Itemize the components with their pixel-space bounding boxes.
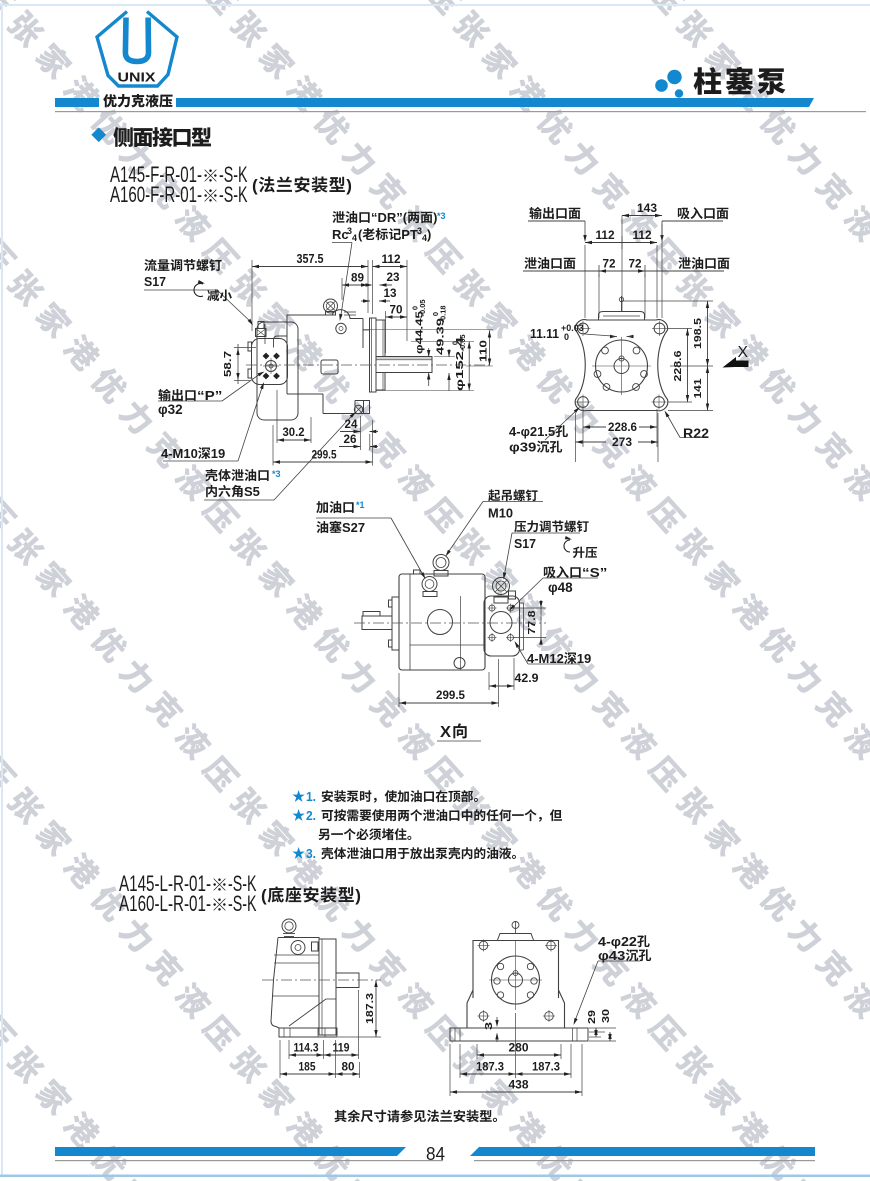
- svg-text:228.6: 228.6: [672, 350, 684, 381]
- svg-text:112: 112: [382, 252, 401, 266]
- svg-text:357.5: 357.5: [297, 252, 324, 266]
- svg-text:143: 143: [637, 201, 657, 215]
- svg-text:198.5: 198.5: [692, 318, 704, 349]
- svg-text:13: 13: [384, 286, 397, 300]
- svg-text:58.7: 58.7: [222, 351, 234, 377]
- svg-text:273: 273: [612, 435, 632, 449]
- svg-text:84: 84: [426, 1144, 445, 1164]
- svg-text:299.5: 299.5: [312, 448, 337, 462]
- svg-text:φ39: φ39: [509, 440, 536, 455]
- svg-text:): ): [355, 886, 361, 905]
- svg-text:110: 110: [477, 340, 489, 362]
- svg-text:89: 89: [351, 271, 364, 285]
- svg-text:42.9: 42.9: [515, 671, 539, 685]
- svg-text:(: (: [252, 176, 258, 195]
- svg-text:-S-K: -S-K: [228, 891, 257, 916]
- svg-text:R22: R22: [683, 426, 709, 441]
- svg-text:A160-L-R-01-: A160-L-R-01-: [119, 891, 211, 916]
- svg-text:19: 19: [211, 446, 226, 461]
- svg-text:): ): [346, 176, 352, 195]
- svg-text:M10: M10: [488, 506, 513, 521]
- svg-text:30: 30: [600, 1009, 612, 1023]
- svg-text:72: 72: [603, 257, 616, 271]
- svg-text:*3: *3: [272, 469, 281, 479]
- svg-text:-0.18: -0.18: [439, 305, 448, 322]
- svg-text:299.5: 299.5: [436, 688, 465, 702]
- svg-text:114.3: 114.3: [294, 1041, 319, 1055]
- svg-text:4: 4: [352, 233, 357, 243]
- svg-text:280: 280: [509, 1041, 529, 1055]
- svg-text:80: 80: [342, 1060, 355, 1074]
- svg-text:2.: 2.: [306, 808, 316, 823]
- svg-text:185: 185: [299, 1060, 316, 1074]
- svg-text:141: 141: [692, 378, 704, 398]
- svg-text:0: 0: [564, 332, 569, 342]
- svg-text:228.6: 228.6: [608, 420, 637, 434]
- svg-text:29: 29: [586, 1010, 598, 1024]
- svg-text:X: X: [738, 344, 749, 361]
- svg-text:187.3: 187.3: [476, 1060, 504, 1074]
- svg-text:*1: *1: [356, 500, 365, 510]
- svg-text:φ48: φ48: [548, 580, 573, 595]
- svg-text:11.11: 11.11: [530, 326, 559, 341]
- svg-text:A160-F-R-01-: A160-F-R-01-: [110, 182, 202, 207]
- svg-text:112: 112: [596, 228, 615, 242]
- svg-text:77.8: 77.8: [526, 610, 538, 634]
- svg-text:72: 72: [629, 257, 642, 271]
- svg-text:187.3: 187.3: [532, 1060, 560, 1074]
- svg-text:23: 23: [387, 270, 400, 284]
- svg-text:(: (: [261, 886, 267, 905]
- svg-text:S27: S27: [342, 520, 365, 535]
- svg-text:S5: S5: [244, 484, 260, 499]
- svg-text:-S-K: -S-K: [219, 182, 248, 207]
- svg-text:3: 3: [483, 1022, 495, 1030]
- svg-text:438: 438: [509, 1078, 529, 1092]
- svg-text:“DR”(: “DR”(: [371, 210, 408, 225]
- svg-text:70: 70: [390, 303, 403, 317]
- svg-text:S17: S17: [144, 274, 166, 289]
- svg-text:X: X: [440, 724, 451, 741]
- svg-text:(: (: [358, 227, 363, 242]
- svg-text:PT: PT: [401, 227, 418, 242]
- svg-text:UNIX: UNIX: [118, 70, 156, 85]
- svg-text:4-M10: 4-M10: [161, 446, 198, 461]
- svg-text:4-φ22: 4-φ22: [598, 934, 637, 949]
- svg-text:-0.05: -0.05: [418, 299, 427, 316]
- svg-text:3.: 3.: [306, 846, 316, 861]
- svg-text:1.: 1.: [306, 789, 316, 804]
- svg-text:φ32: φ32: [158, 402, 183, 417]
- svg-text:112: 112: [633, 228, 652, 242]
- svg-text:24: 24: [345, 417, 358, 431]
- svg-text:*3: *3: [437, 211, 446, 221]
- svg-text:): ): [427, 227, 431, 242]
- svg-text:-0.05: -0.05: [458, 334, 467, 351]
- svg-text:S17: S17: [514, 536, 536, 551]
- svg-text:187.3: 187.3: [364, 993, 376, 1024]
- svg-text:30.2: 30.2: [283, 425, 305, 439]
- svg-text:119: 119: [333, 1041, 350, 1055]
- svg-text:26: 26: [344, 432, 357, 446]
